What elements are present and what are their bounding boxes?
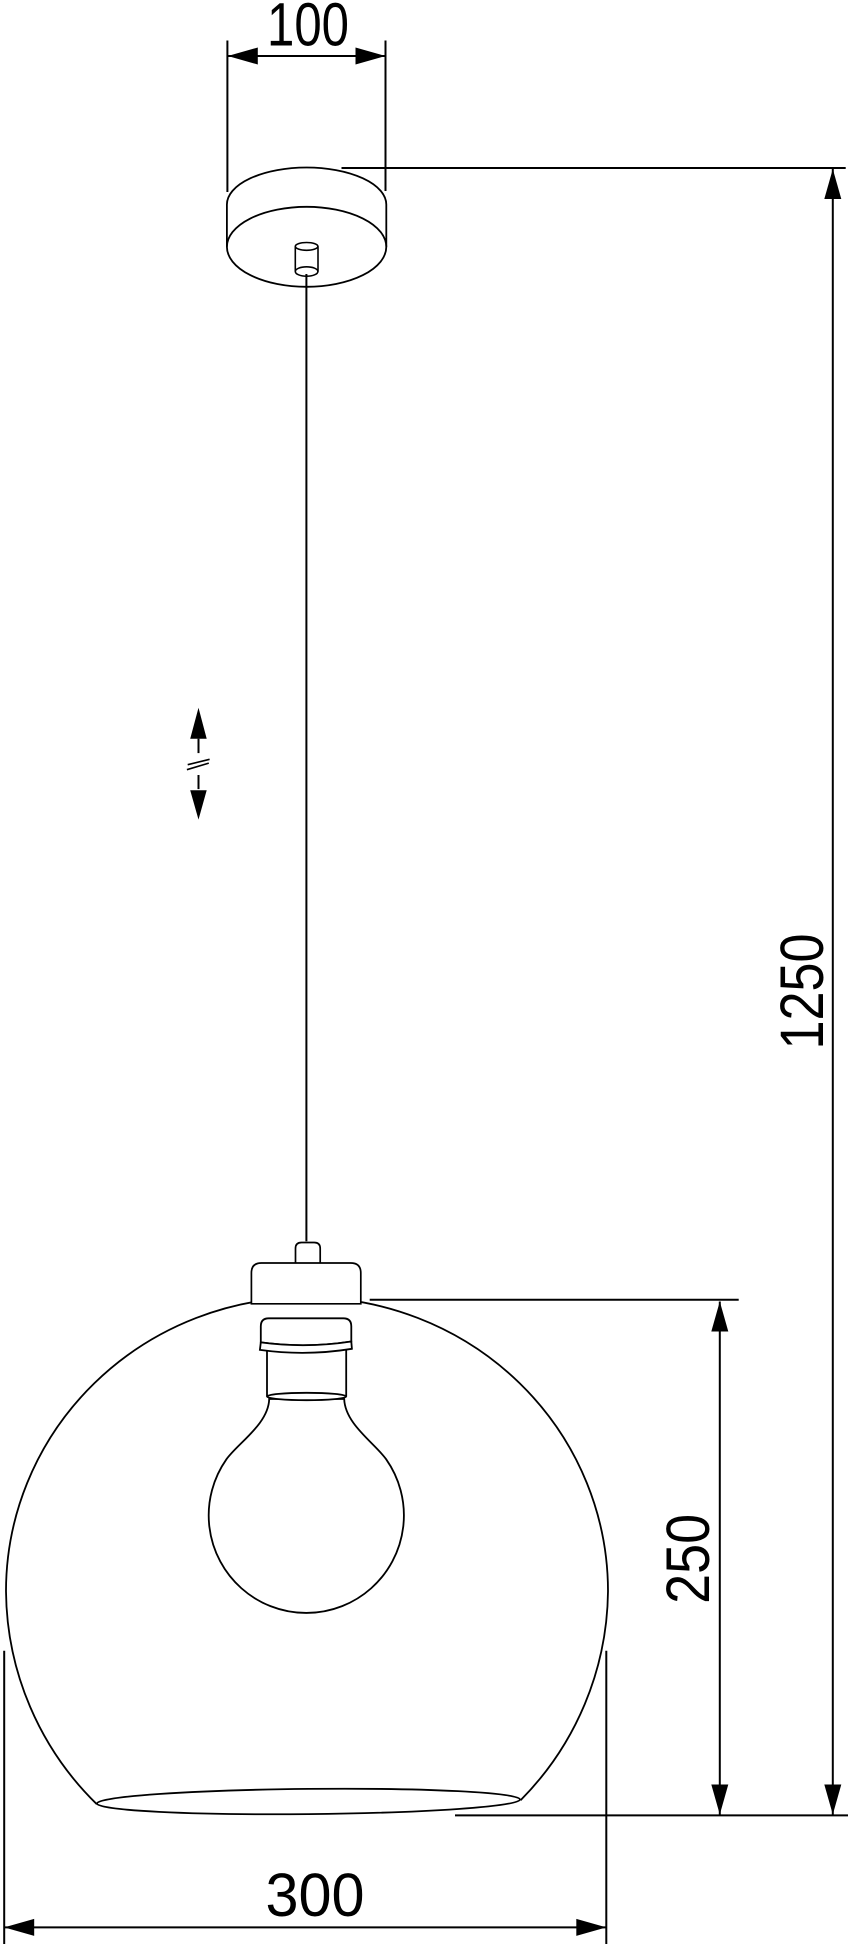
svg-text:100: 100: [267, 0, 349, 59]
svg-text:300: 300: [266, 1861, 365, 1930]
svg-text:1250: 1250: [768, 934, 837, 1050]
svg-text:250: 250: [654, 1514, 723, 1604]
